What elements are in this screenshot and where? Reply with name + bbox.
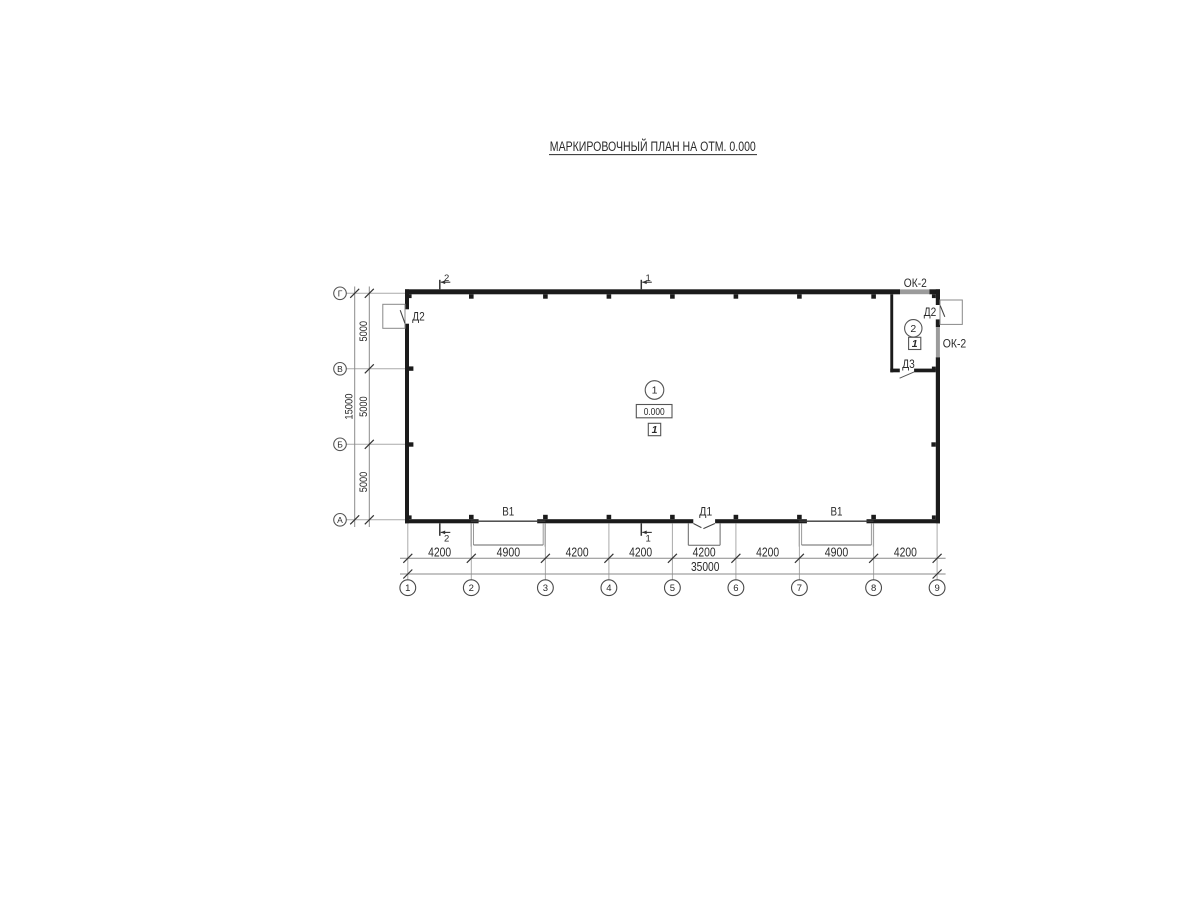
svg-text:ОК-2: ОК-2 [904, 278, 927, 290]
svg-text:В1: В1 [502, 506, 514, 518]
svg-text:4200: 4200 [894, 546, 917, 560]
svg-text:4200: 4200 [629, 546, 652, 560]
svg-text:Б: Б [337, 439, 343, 449]
svg-text:2: 2 [444, 533, 449, 544]
svg-text:1: 1 [645, 273, 650, 284]
svg-text:6: 6 [733, 583, 738, 594]
svg-text:ОК-2: ОК-2 [943, 338, 967, 350]
svg-text:4200: 4200 [756, 546, 779, 560]
svg-text:1: 1 [652, 385, 658, 397]
svg-text:1: 1 [645, 533, 650, 544]
svg-text:2: 2 [444, 273, 449, 284]
svg-text:А: А [337, 515, 343, 525]
svg-text:15000: 15000 [343, 394, 355, 420]
svg-text:4200: 4200 [566, 546, 589, 560]
svg-text:Д2: Д2 [924, 307, 937, 319]
svg-text:9: 9 [934, 583, 939, 594]
svg-text:Д1: Д1 [699, 507, 712, 519]
svg-text:Д2: Д2 [412, 311, 425, 323]
svg-text:В1: В1 [831, 506, 843, 518]
svg-text:4200: 4200 [428, 546, 451, 560]
svg-text:МАРКИРОВОЧНЫЙ ПЛАН НА ОТМ. 0.0: МАРКИРОВОЧНЫЙ ПЛАН НА ОТМ. 0.000 [550, 137, 756, 155]
svg-text:2: 2 [910, 323, 916, 335]
svg-text:3: 3 [543, 583, 548, 594]
svg-text:Г: Г [338, 288, 343, 298]
svg-text:4: 4 [606, 583, 611, 594]
svg-text:7: 7 [797, 583, 802, 594]
svg-text:5000: 5000 [358, 396, 370, 417]
svg-text:4900: 4900 [825, 546, 849, 560]
svg-text:1: 1 [652, 424, 658, 436]
svg-text:2: 2 [469, 583, 474, 594]
svg-text:5: 5 [670, 583, 675, 594]
svg-text:0.000: 0.000 [644, 406, 665, 418]
svg-text:1: 1 [912, 338, 918, 350]
svg-text:В: В [337, 364, 343, 374]
svg-text:5000: 5000 [358, 321, 370, 342]
svg-text:35000: 35000 [691, 560, 720, 574]
svg-text:Д3: Д3 [902, 359, 915, 371]
svg-text:8: 8 [871, 583, 876, 594]
svg-text:4200: 4200 [693, 546, 716, 560]
svg-text:4900: 4900 [497, 546, 521, 560]
svg-text:5000: 5000 [358, 472, 370, 493]
svg-text:1: 1 [405, 583, 410, 594]
